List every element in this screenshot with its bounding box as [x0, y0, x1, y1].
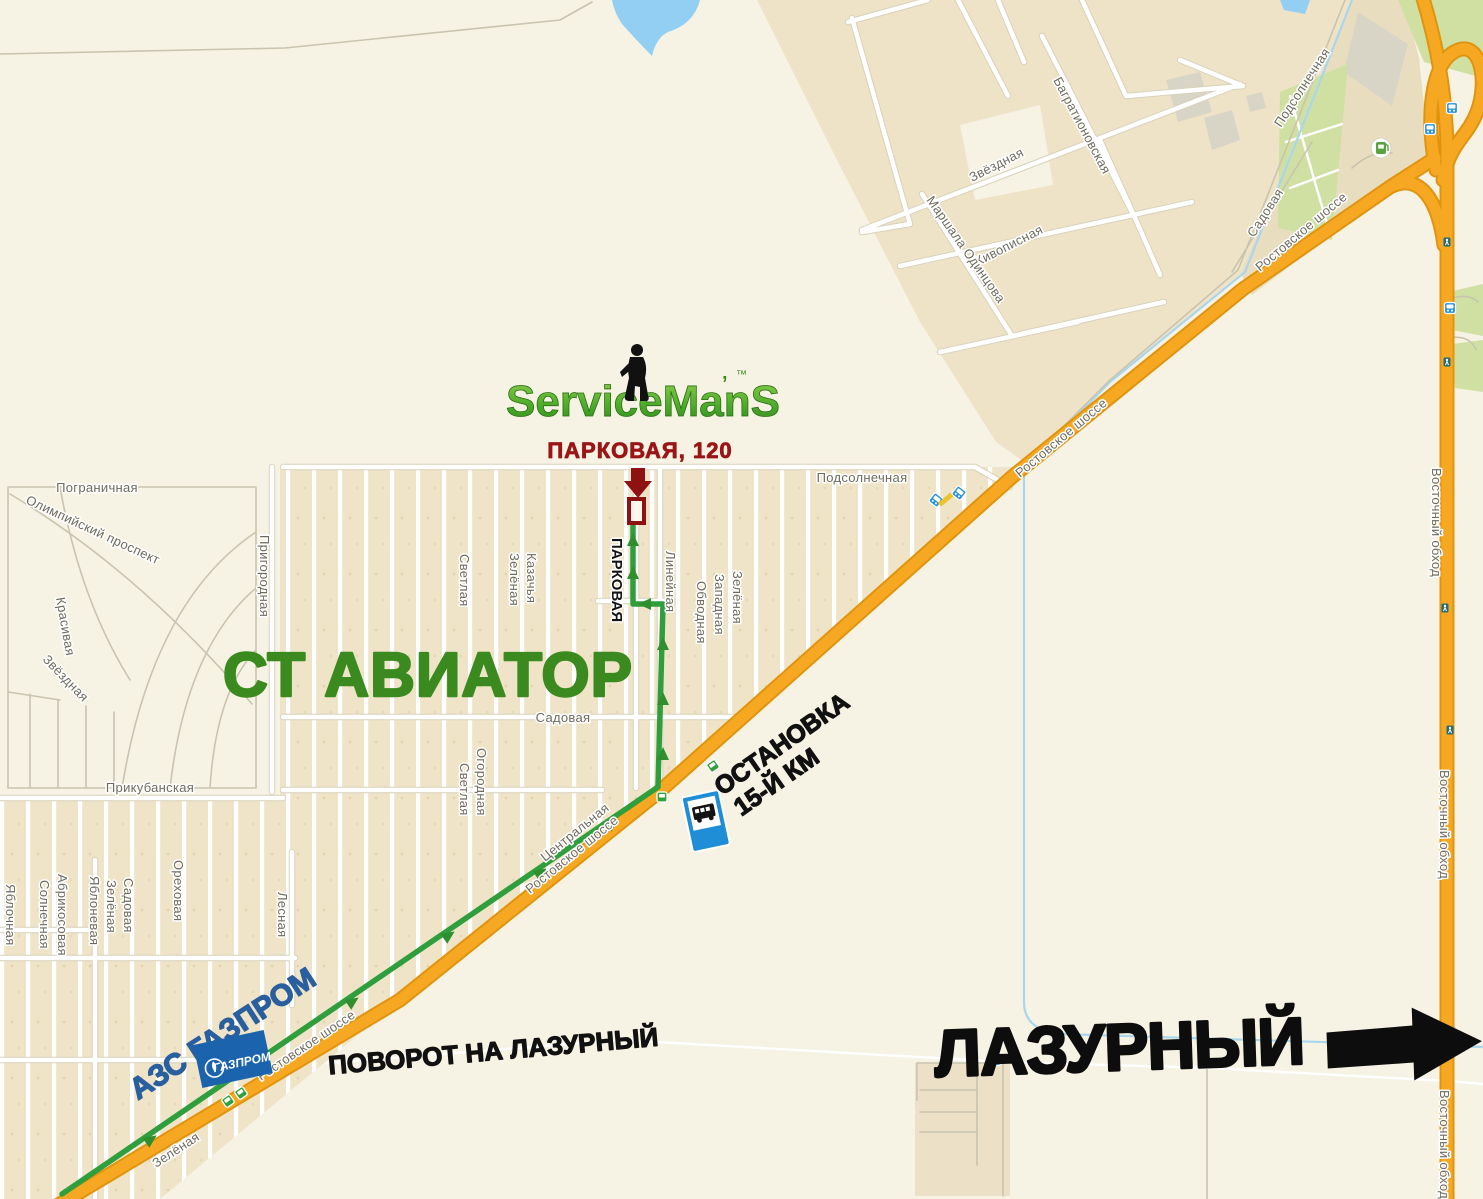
road-label: Восточный обход	[1429, 468, 1444, 577]
street-label: Садовая	[536, 710, 591, 725]
street-label: Ореховая	[171, 860, 186, 921]
bus-stop-icon	[1425, 124, 1436, 135]
destination-address-label: ПАРКОВАЯ, 120	[547, 438, 732, 463]
street-label: Пригородная	[257, 535, 272, 617]
pedestrian-crossing-icon	[1447, 726, 1454, 735]
gas-station-icon	[1371, 138, 1391, 158]
street-label-parkovaya: ПАРКОВАЯ	[608, 538, 625, 622]
street-label: Пограничная	[56, 480, 138, 495]
area-title-st-aviator: СТ АВИАТОР	[223, 641, 633, 710]
destination-label: ЛАЗУРНЫЙ	[933, 1003, 1305, 1091]
street-label: Светлая	[457, 554, 472, 607]
street-label: Огородная	[474, 748, 489, 816]
street-label: Казачья	[524, 553, 539, 603]
street-label: Солнечная	[37, 880, 52, 949]
brand-apostrophe: ’	[722, 373, 728, 395]
street-label: Яблоневая	[87, 876, 102, 945]
pedestrian-crossing-icon	[1444, 238, 1451, 247]
street-label: Зелёная	[507, 553, 522, 606]
street-label: Прикубанская	[106, 780, 194, 795]
street-label: Подсолнечная	[817, 470, 908, 485]
street-label: Линейная	[663, 551, 678, 612]
pedestrian-crossing-icon	[1444, 358, 1451, 367]
bus-stop-icon	[1447, 103, 1458, 114]
trademark-icon: ™	[736, 369, 747, 381]
street-label: Зелёная	[104, 880, 119, 933]
street-label: Обводная	[694, 581, 709, 644]
pedestrian-crossing-icon	[1442, 604, 1449, 613]
street-label: Яблочная	[3, 884, 18, 946]
destination-building	[629, 499, 644, 523]
street-label: Западная	[712, 574, 727, 635]
street-label: Абрикосовая	[55, 874, 70, 956]
map-canvas: Пограничная Олимпийский проспект Красива…	[0, 0, 1483, 1199]
route-map: Пограничная Олимпийский проспект Красива…	[0, 0, 1483, 1199]
road-label: Восточный обход	[1437, 770, 1452, 879]
bus-stop-icon	[1445, 303, 1456, 314]
route-bus-icon	[657, 792, 667, 802]
street-label: Зелёная	[730, 571, 745, 624]
street-label: Лесная	[275, 892, 290, 938]
street-label: Светлая	[457, 763, 472, 816]
road-label: Восточный обход	[1437, 1090, 1452, 1199]
street-label: Садовая	[121, 878, 136, 933]
